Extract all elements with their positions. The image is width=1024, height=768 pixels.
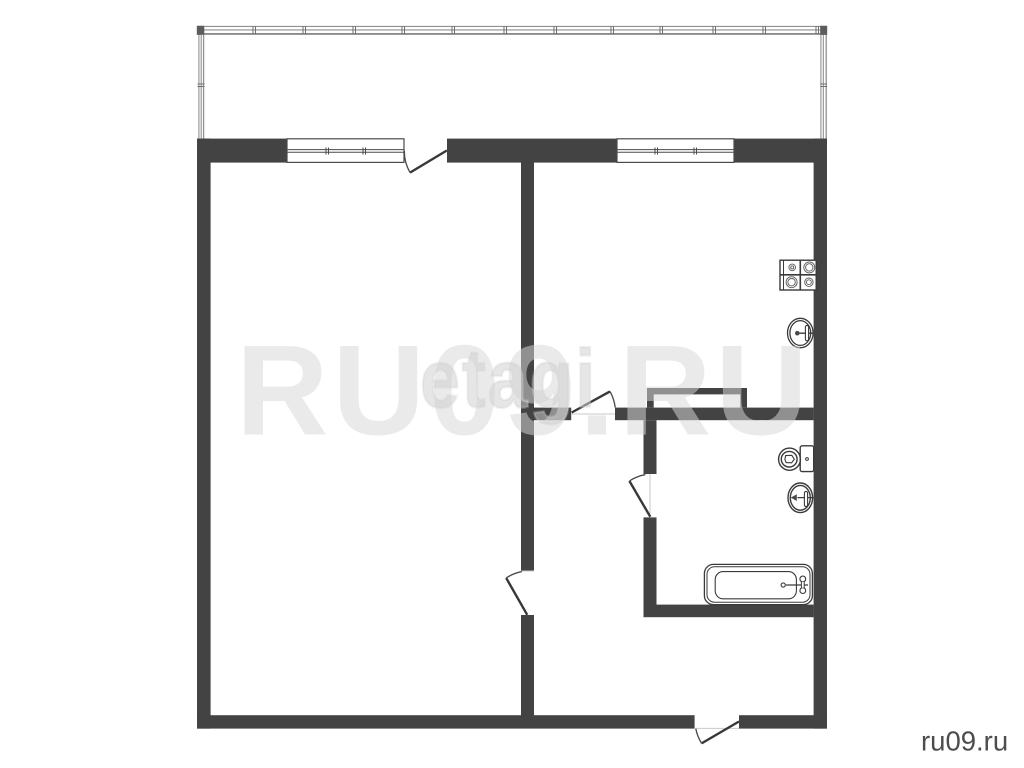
svg-text:etagi: etagi: [420, 333, 597, 425]
svg-text:ru09.ru: ru09.ru: [921, 726, 1008, 757]
